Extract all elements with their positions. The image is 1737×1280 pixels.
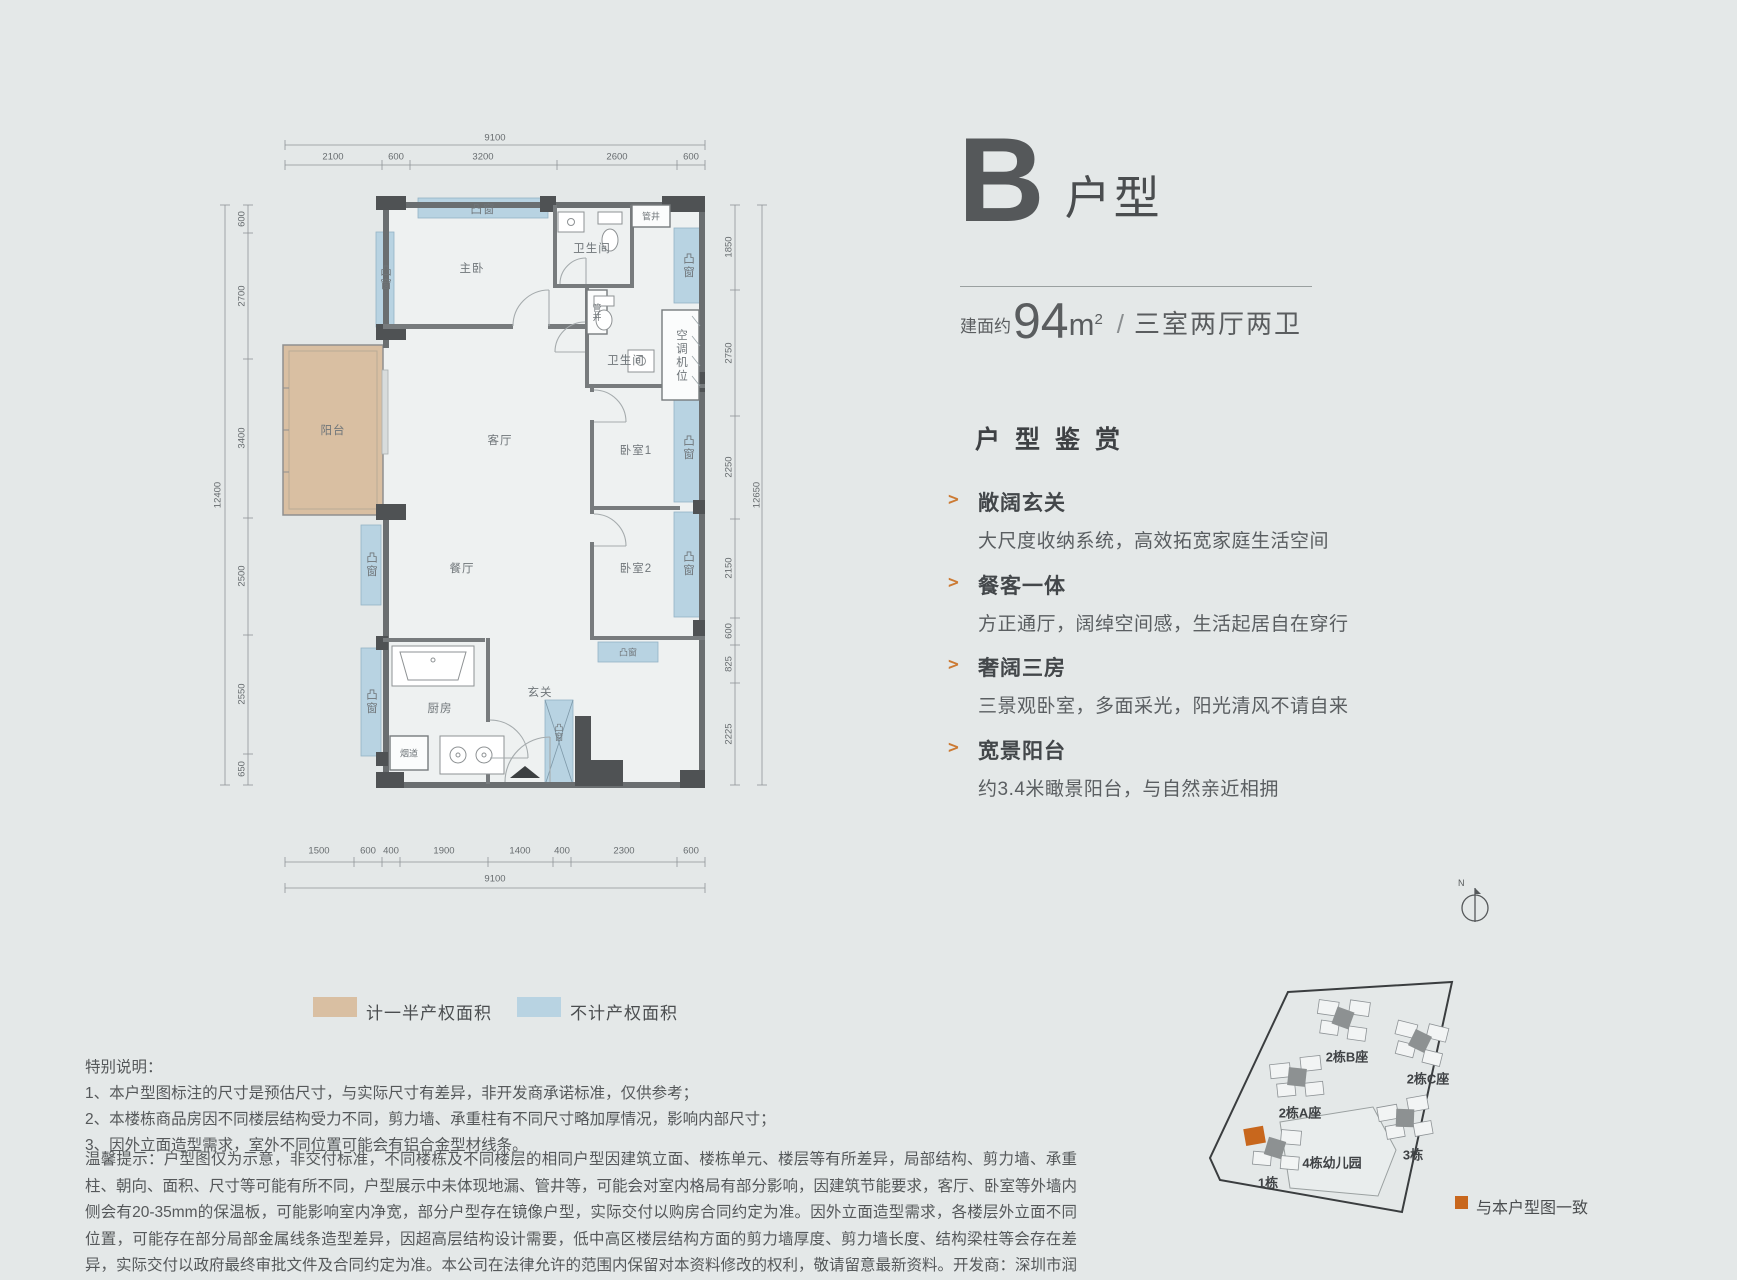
legend-swatch-no-property	[517, 997, 561, 1017]
area-prefix: 建面约	[960, 312, 1011, 346]
area-unit: m	[1069, 307, 1095, 346]
dim-top-total: 9100	[484, 133, 505, 144]
room-label-bath1: 卫生间	[573, 240, 611, 256]
north-arrow-icon	[1462, 888, 1488, 922]
highlighted-unit	[1243, 1126, 1266, 1146]
room-label-ac-unit: 空调机位	[673, 329, 689, 383]
floorplan-page: 主卧 卫生间 管井 凸窗 凸窗 凸窗 管井 空调机位 卫生间 客厅 阳台 卧室1…	[0, 0, 1737, 1280]
room-label-pipeshaft1: 管井	[642, 210, 660, 223]
legend-swatch-half-property	[313, 997, 357, 1017]
dim-top-5: 600	[683, 152, 699, 163]
title-divider	[960, 286, 1312, 287]
room-label-baywindow-master: 凸窗	[377, 265, 393, 292]
site-legend-label: 与本户型图一致	[1476, 1194, 1588, 1218]
site-label-2A: 2栋A座	[1279, 1103, 1322, 1122]
feature-item-1: > 敞阔玄关 大尺度收纳系统，高效拓宽家庭生活空间	[948, 487, 1368, 553]
dim-bottom-8: 600	[683, 846, 699, 857]
feature-title: 敞阔玄关	[978, 487, 1368, 517]
area-superscript: 2	[1094, 311, 1102, 328]
dim-bottom-7: 2300	[613, 846, 634, 857]
area-value: 94	[1013, 296, 1069, 346]
room-label-baywindow-entry: 凸窗	[553, 723, 566, 741]
bedroom1-door-gap	[590, 392, 594, 420]
dim-bottom-6: 400	[554, 846, 570, 857]
feature-desc: 约3.4米瞰景阳台，与自然亲近相拥	[978, 774, 1368, 801]
dim-bottom-5: 1400	[509, 846, 530, 857]
site-label-kindergarten: 4栋幼儿园	[1302, 1153, 1361, 1172]
bedroom2-door-gap	[590, 514, 594, 542]
feature-desc: 大尺度收纳系统，高效拓宽家庭生活空间	[978, 526, 1368, 553]
rooms-label: 三室两厅两卫	[1134, 304, 1302, 346]
legend-label-no-property: 不计产权面积	[570, 999, 678, 1024]
dim-right-5: 600	[724, 623, 735, 639]
unit-type-label: 户型	[1065, 162, 1163, 234]
dim-left-1: 600	[237, 211, 248, 227]
north-label: N	[1458, 878, 1465, 888]
disclaimer-text: 温馨提示：户型图仅为示意，非交付标准，不同楼栋及不同楼层的相同户型因建筑立面、楼…	[85, 1147, 1077, 1280]
dim-right-2: 2750	[724, 342, 735, 363]
dim-bottom-4: 1900	[433, 846, 454, 857]
chevron-icon: >	[948, 572, 959, 593]
room-label-baywindow-top: 凸窗	[471, 201, 496, 217]
feature-desc: 三景观卧室，多面采光，阳光清风不请自来	[978, 691, 1368, 718]
feature-item-3: > 奢阔三房 三景观卧室，多面采光，阳光清风不请自来	[948, 652, 1368, 718]
special-notes-title: 特别说明：	[85, 1055, 776, 1081]
dim-top-1: 2100	[322, 152, 343, 163]
room-label-baywindow-righttop: 凸窗	[680, 253, 696, 280]
special-note-2: 2、本楼栋商品房因不同楼层结构受力不同，剪力墙、承重柱有不同尺寸略加厚情况，影响…	[85, 1107, 776, 1133]
room-label-foyer: 玄关	[528, 684, 553, 700]
unit-title: B 户型	[958, 128, 1163, 234]
room-label-master: 主卧	[460, 260, 485, 276]
feature-title: 餐客一体	[978, 570, 1368, 600]
dim-left-total: 12400	[213, 482, 224, 508]
room-label-baywindow-kitchen: 凸窗	[363, 689, 379, 716]
unit-area: 建面约 94 m 2 / 三室两厅两卫	[960, 296, 1302, 346]
chevron-icon: >	[948, 489, 959, 510]
room-label-pipeshaft2: 管井	[591, 303, 604, 321]
dim-right-3: 2250	[724, 456, 735, 477]
dim-bottom-total: 9100	[484, 874, 505, 885]
special-notes: 特别说明： 1、本户型图标注的尺寸是预估尺寸，与实际尺寸有差异，非开发商承诺标准…	[85, 1055, 776, 1159]
room-label-baywindow-bed2: 凸窗	[680, 551, 696, 578]
dim-top-4: 2600	[606, 152, 627, 163]
dim-left-4: 2500	[237, 565, 248, 586]
dim-right-4: 2150	[724, 557, 735, 578]
feature-item-4: > 宽景阳台 约3.4米瞰景阳台，与自然亲近相拥	[948, 735, 1368, 801]
floor-plan-drawing	[200, 120, 830, 920]
room-label-flue: 烟道	[400, 747, 418, 760]
room-label-dining: 餐厅	[450, 560, 475, 576]
dim-right-7: 2225	[724, 723, 735, 744]
room-label-baywindow-dining: 凸窗	[363, 552, 379, 579]
site-plan: 2栋B座 2栋A座 2栋C座 3栋 1栋 4栋幼儿园 N 与本户型图一致	[1140, 860, 1580, 1250]
chevron-icon: >	[948, 654, 959, 675]
site-label-1: 1栋	[1258, 1173, 1278, 1192]
site-label-2B: 2栋B座	[1326, 1047, 1369, 1066]
room-label-baywindow-bed1: 凸窗	[680, 435, 696, 462]
feature-title: 宽景阳台	[978, 735, 1368, 765]
dim-left-2: 2700	[237, 285, 248, 306]
room-label-baywindow-bed2-bottom: 凸窗	[619, 646, 637, 659]
dim-left-3: 3400	[237, 427, 248, 448]
legend-label-half-property: 计一半产权面积	[366, 999, 492, 1024]
site-legend-swatch	[1455, 1196, 1468, 1209]
dim-left-6: 650	[237, 761, 248, 777]
room-label-bedroom1: 卧室1	[620, 442, 652, 458]
room-label-kitchen: 厨房	[428, 700, 453, 716]
special-note-1: 1、本户型图标注的尺寸是预估尺寸，与实际尺寸有差异，非开发商承诺标准，仅供参考；	[85, 1081, 776, 1107]
dim-left-5: 2550	[237, 683, 248, 704]
dim-top-2: 600	[388, 152, 404, 163]
dim-bottom-3: 400	[383, 846, 399, 857]
appreciation-heading: 户型鉴赏	[975, 420, 1135, 456]
site-label-3: 3栋	[1403, 1145, 1423, 1164]
dim-right-1: 1850	[724, 236, 735, 257]
room-label-balcony: 阳台	[321, 422, 346, 438]
dim-right-total: 12650	[752, 482, 763, 508]
dim-bottom-1: 1500	[308, 846, 329, 857]
room-label-bath2: 卫生间	[607, 352, 645, 368]
feature-title: 奢阔三房	[978, 652, 1368, 682]
room-label-bedroom2: 卧室2	[620, 560, 652, 576]
balcony-slider	[382, 370, 388, 454]
floor-plan: 主卧 卫生间 管井 凸窗 凸窗 凸窗 管井 空调机位 卫生间 客厅 阳台 卧室1…	[200, 120, 830, 920]
dim-right-6: 825	[724, 656, 735, 672]
room-label-living: 客厅	[488, 432, 513, 448]
unit-letter: B	[958, 128, 1045, 234]
chevron-icon: >	[948, 737, 959, 758]
area-divider: /	[1103, 309, 1134, 346]
building-2A	[1269, 1055, 1324, 1099]
site-label-2C: 2栋C座	[1407, 1069, 1450, 1088]
building-2B	[1314, 996, 1370, 1042]
dim-bottom-2: 600	[360, 846, 376, 857]
feature-desc: 方正通厅，阔绰空间感，生活起居自在穿行	[978, 609, 1368, 636]
dim-top-3: 3200	[472, 152, 493, 163]
feature-item-2: > 餐客一体 方正通厅，阔绰空间感，生活起居自在穿行	[948, 570, 1368, 636]
